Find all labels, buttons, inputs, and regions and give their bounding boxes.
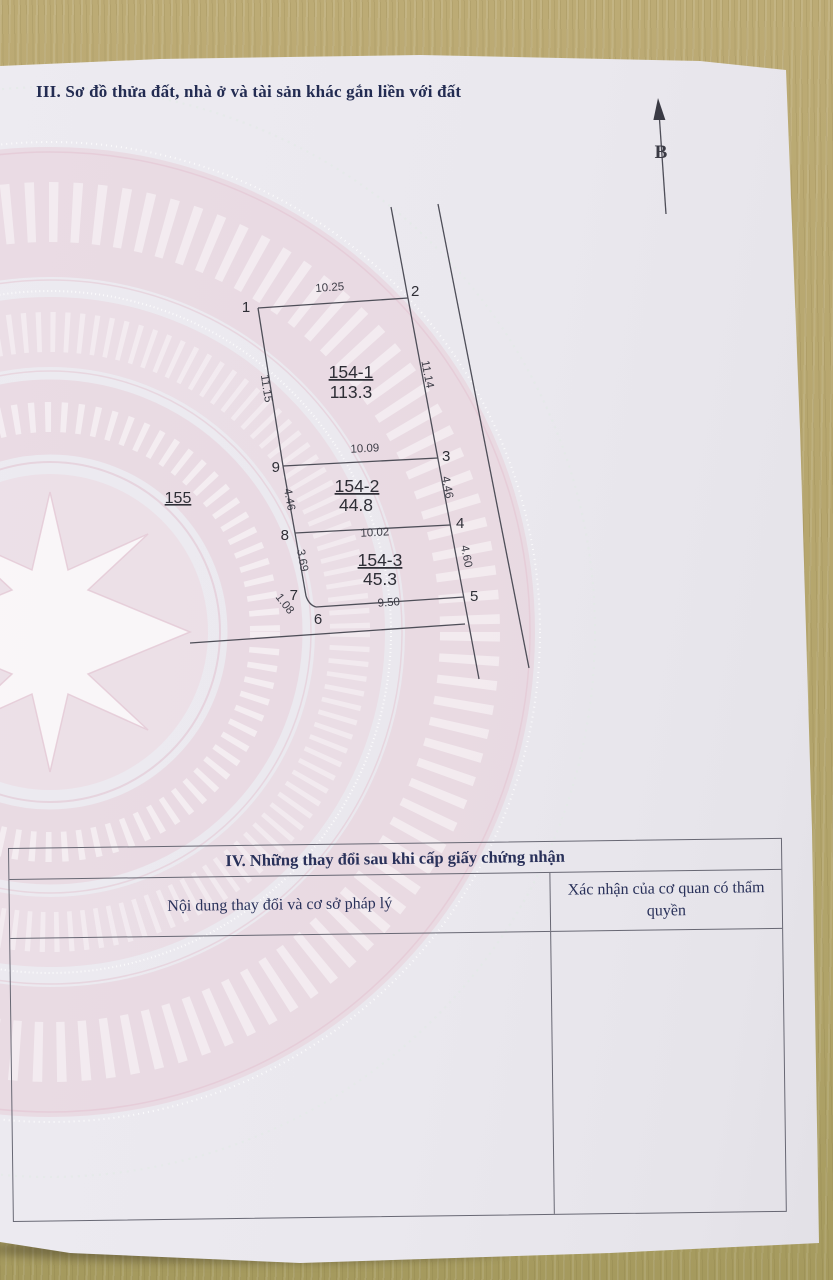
- parcel-154-2-id: 154-2: [335, 476, 380, 496]
- parcel-labels: 154-1 113.3 154-2 44.8 154-3 45.3 155: [165, 362, 403, 589]
- point-9: 9: [272, 459, 280, 476]
- road-edge-line-left: [391, 207, 479, 679]
- column-header-authority-confirmation: Xác nhận của cơ quan có thẩm quyền: [550, 870, 782, 931]
- north-label: B: [655, 142, 668, 163]
- dim-2-3: 11.14: [418, 360, 435, 390]
- parcel-154-1-id: 154-1: [329, 362, 374, 382]
- parcel-154-3-id: 154-3: [358, 550, 403, 570]
- point-2: 2: [411, 283, 419, 300]
- edge-9-3: [283, 458, 438, 466]
- dim-1-2: 10.25: [315, 281, 345, 295]
- edge-1-2: [258, 298, 408, 308]
- point-1: 1: [242, 299, 250, 316]
- column-header-content-of-change: Nội dung thay đổi và cơ sở pháp lý: [9, 873, 551, 938]
- corner-point-labels: 1 2 3 4 5 6 7 8 9: [242, 283, 479, 628]
- dim-1-9: 11.15: [258, 374, 274, 403]
- parcel-154-1-area: 113.3: [330, 382, 373, 402]
- parcel-154-2-area: 44.8: [339, 495, 373, 515]
- edge-7-6: [306, 596, 316, 607]
- dim-3-4: 4.46: [439, 475, 455, 499]
- point-8: 8: [281, 527, 289, 544]
- point-4: 4: [456, 515, 464, 532]
- dim-9-8: 4.46: [281, 487, 297, 511]
- table-body-row: [10, 929, 786, 1221]
- parcel-154-3-area: 45.3: [363, 569, 397, 589]
- road-bottom-line: [190, 624, 465, 643]
- dim-8-7: 3.69: [294, 548, 310, 572]
- point-6: 6: [314, 611, 322, 628]
- north-arrow: B: [653, 98, 667, 214]
- body-cell-content-of-change: [10, 932, 555, 1221]
- point-3: 3: [442, 448, 450, 465]
- adjacent-parcel-155-label: 155: [165, 490, 192, 507]
- dim-6-5: 9.50: [377, 596, 400, 610]
- dim-9-3: 10.09: [350, 442, 379, 455]
- boundary-lines: [190, 204, 529, 679]
- table-header-row: Nội dung thay đổi và cơ sở pháp lý Xác n…: [9, 870, 782, 939]
- section4-changes-table: IV. Những thay đổi sau khi cấp giấy chứn…: [8, 838, 787, 1222]
- body-cell-authority-confirmation: [551, 929, 786, 1214]
- dim-8-4: 10.02: [360, 526, 389, 539]
- paper-sheet: III. Sơ đồ thửa đất, nhà ở và tài sản kh…: [0, 0, 833, 1280]
- dim-4-5: 4.60: [458, 544, 474, 568]
- point-5: 5: [470, 588, 478, 605]
- north-arrowhead: [653, 98, 665, 120]
